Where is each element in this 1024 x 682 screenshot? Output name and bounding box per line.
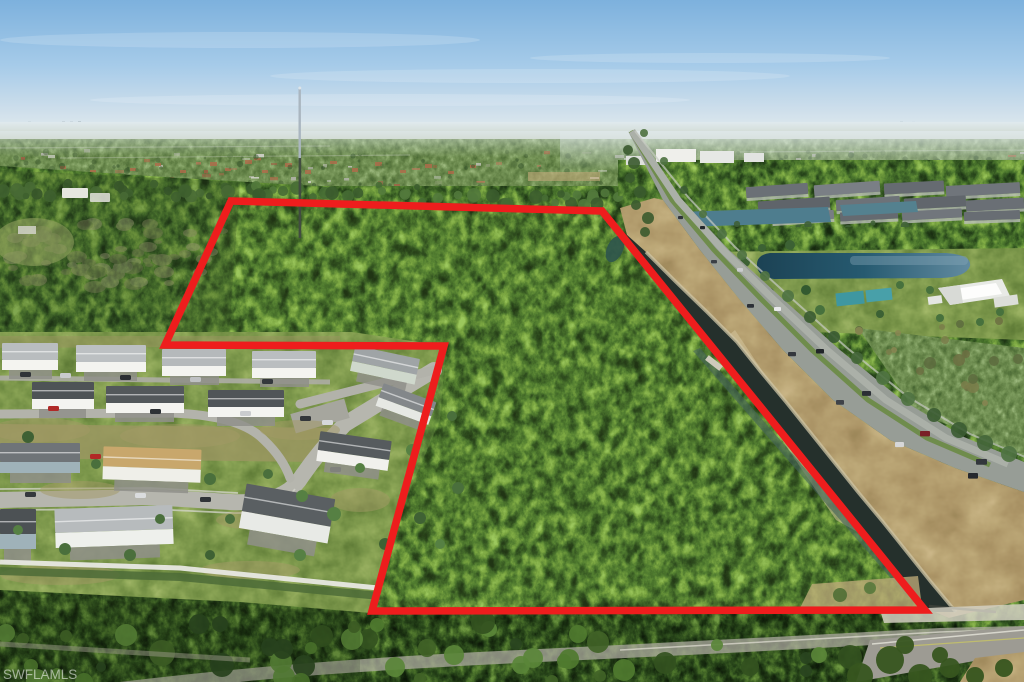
svg-text:SWFLAMLS: SWFLAMLS [3, 667, 77, 682]
